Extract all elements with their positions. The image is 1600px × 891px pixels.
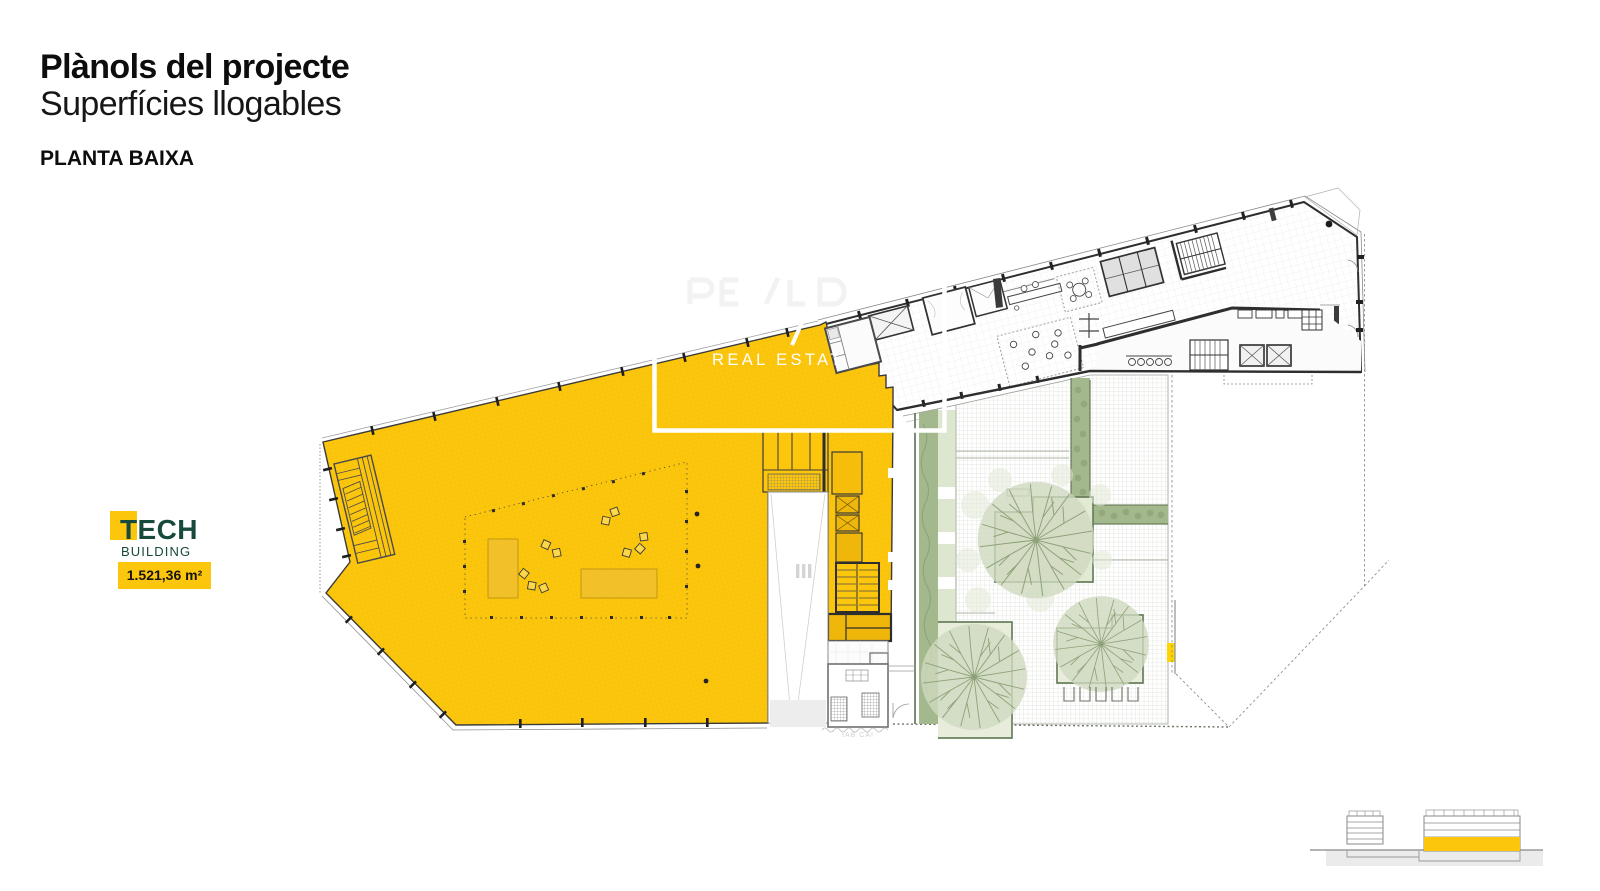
svg-text:REAL ESTAT: REAL ESTAT [712, 351, 844, 369]
svg-text:IAB CAI: IAB CAI [842, 732, 874, 739]
